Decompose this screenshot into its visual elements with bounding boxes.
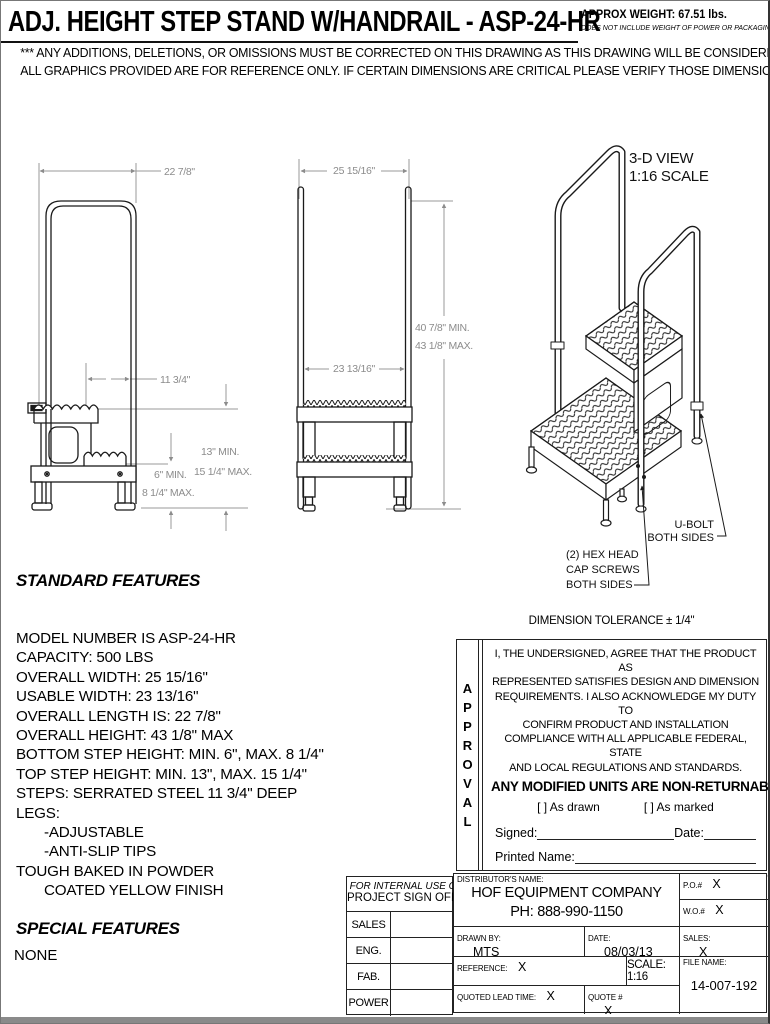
- po-label: P.O.#: [683, 881, 702, 890]
- approx-weight: APPROX WEIGHT: 67.51 lbs.: [581, 7, 748, 21]
- date-label: DATE:: [588, 934, 610, 943]
- iso-view-scale: 1:16 SCALE: [629, 168, 709, 185]
- disclaimer-line-2: ALL GRAPHICS PROVIDED ARE FOR REFERENCE …: [20, 63, 752, 78]
- approval-divider-line: [482, 640, 483, 870]
- feature-item: LEGS:: [16, 804, 361, 823]
- signed-input-line[interactable]: [537, 826, 674, 840]
- feature-item: BOTTOM STEP HEIGHT: MIN. 6", MAX. 8 1/4": [16, 745, 361, 764]
- sales-value: X: [699, 946, 765, 957]
- approval-body: I, THE UNDERSIGNED, AGREE THAT THE PRODU…: [485, 640, 766, 870]
- approval-statement: REPRESENTED SATISFIES DESIGN AND DIMENSI…: [491, 675, 760, 689]
- sign-off-field[interactable]: [391, 912, 452, 937]
- internal-use-header-line2: PROJECT SIGN OFF: [347, 892, 452, 904]
- page-bottom-edge: [1, 1017, 770, 1023]
- dim-step-depth-label: 11 3/4": [160, 374, 191, 386]
- drawn-by-cell: DRAWN BY: MTS: [454, 927, 585, 957]
- internal-use-header: FOR INTERNAL USE ONLY PROJECT SIGN OFF: [347, 877, 452, 912]
- approval-statement: REQUIREMENTS. I ALSO ACKNOWLEDGE MY DUTY…: [491, 690, 760, 718]
- hex-callout-line2: CAP SCREWS: [566, 564, 640, 576]
- drawn-by-value: MTS: [473, 946, 581, 957]
- date-value: 08/03/13: [604, 946, 676, 957]
- po-value: X: [712, 877, 720, 891]
- date-cell: DATE: 08/03/13: [585, 927, 680, 957]
- sign-off-label: FAB.: [347, 964, 391, 989]
- distributor-name: HOF EQUIPMENT COMPANY: [457, 885, 676, 901]
- side-view-structure: [28, 201, 136, 510]
- file-name-cell: FILE NAME: 14-007-192: [680, 957, 768, 1014]
- date-input-line[interactable]: [704, 826, 756, 840]
- feature-item: USABLE WIDTH: 23 13/16": [16, 687, 361, 706]
- wo-label: W.O.#: [683, 907, 705, 916]
- approval-statement: CONFIRM PRODUCT AND INSTALLATION: [491, 718, 760, 732]
- signed-label: Signed:: [495, 826, 537, 840]
- title-block: DISTRIBUTOR'S NAME: HOF EQUIPMENT COMPAN…: [453, 873, 767, 1013]
- disclaimer-line-1: *** ANY ADDITIONS, DELETIONS, OR OMISSIO…: [20, 45, 752, 60]
- iso-view-title: 3-D VIEW: [629, 150, 694, 167]
- dim-height-min-label: 40 7/8" MIN.: [415, 322, 469, 334]
- hex-callout-line3: BOTH SIDES: [566, 579, 633, 591]
- as-drawn-checkbox[interactable]: [ ] As drawn: [537, 800, 600, 814]
- wo-cell: W.O.# X: [680, 900, 768, 927]
- distributor-cell: DISTRIBUTOR'S NAME: HOF EQUIPMENT COMPAN…: [454, 874, 680, 927]
- reference-label: REFERENCE:: [457, 964, 508, 973]
- sign-off-label: ENG.: [347, 938, 391, 963]
- feature-item: -ANTI-SLIP TIPS: [16, 842, 361, 861]
- sign-off-field[interactable]: [391, 938, 452, 963]
- date-label: Date:: [674, 826, 704, 840]
- dim-bottom-step-max-label: 8 1/4" MAX.: [142, 487, 194, 499]
- approval-statement: COMPLIANCE WITH ALL APPLICABLE FEDERAL, …: [491, 732, 760, 760]
- sales-label: SALES:: [683, 934, 710, 943]
- front-view-drawing: 25 15/16" 23 13/16" 40 7/8" MIN. 43 1/8"…: [281, 141, 481, 551]
- internal-use-table: FOR INTERNAL USE ONLY PROJECT SIGN OFF S…: [346, 876, 453, 1015]
- printed-name-input-line[interactable]: [575, 850, 756, 864]
- ubolt-callout-line1: U-BOLT: [674, 519, 714, 531]
- drawn-by-label: DRAWN BY:: [457, 934, 501, 943]
- approval-box: APPROVAL I, THE UNDERSIGNED, AGREE THAT …: [456, 639, 767, 871]
- title-underline: [1, 41, 578, 43]
- reference-cell: REFERENCE: X: [454, 957, 627, 986]
- quote-number-value: X: [604, 1005, 676, 1014]
- ubolt-callout-line2: BOTH SIDES: [647, 532, 714, 544]
- weight-block: APPROX WEIGHT: 67.51 lbs. DOES NOT INCLU…: [581, 7, 767, 32]
- file-name-label: FILE NAME:: [683, 958, 765, 967]
- quote-number-cell: QUOTE # X: [585, 986, 680, 1014]
- approval-statement: AND LOCAL REGULATIONS AND STANDARDS.: [491, 761, 760, 775]
- sign-off-label: SALES: [347, 912, 391, 937]
- iso-steps: [527, 302, 683, 526]
- po-cell: P.O.# X: [680, 874, 768, 900]
- front-view-structure: [297, 187, 412, 511]
- printed-name-label: Printed Name:: [495, 850, 575, 864]
- special-features-heading: SPECIAL FEATURES: [16, 919, 180, 939]
- quoted-lead-time-value: X: [547, 989, 555, 1003]
- dim-overall-length-label: 22 7/8": [164, 166, 195, 178]
- quoted-lead-time-label: QUOTED LEAD TIME:: [457, 993, 536, 1002]
- non-returnable-warning: ANY MODIFIED UNITS ARE NON-RETURNABLE: [491, 779, 760, 794]
- dim-usable-width-label: 23 13/16": [333, 363, 375, 375]
- sign-off-row-power: POWER: [347, 990, 452, 1016]
- sales-cell: SALES: X: [680, 927, 768, 957]
- drawing-sheet: ADJ. HEIGHT STEP STAND W/HANDRAIL - ASP-…: [0, 0, 770, 1024]
- standard-features-list: MODEL NUMBER IS ASP-24-HR CAPACITY: 500 …: [16, 629, 361, 901]
- feature-item: STEPS: SERRATED STEEL 11 3/4" DEEP: [16, 784, 361, 803]
- scale-cell: SCALE: 1:16: [627, 957, 680, 986]
- sign-off-field[interactable]: [391, 990, 452, 1016]
- special-features-value: NONE: [14, 947, 57, 964]
- feature-item: TOUGH BAKED IN POWDER: [16, 862, 361, 881]
- dimension-tolerance: DIMENSION TOLERANCE ± 1/4": [456, 615, 767, 627]
- distributor-label: DISTRIBUTOR'S NAME:: [457, 875, 676, 884]
- iso-view-drawing: 3-D VIEW 1:16 SCALE U-BOLT BOTH SIDES (2…: [501, 136, 766, 601]
- file-name-value: 14-007-192: [683, 979, 765, 992]
- feature-item: MODEL NUMBER IS ASP-24-HR: [16, 629, 361, 648]
- quoted-lead-time-cell: QUOTED LEAD TIME: X: [454, 986, 585, 1014]
- dim-height-max-label: 43 1/8" MAX.: [415, 340, 473, 352]
- approval-vertical-label: APPROVAL: [461, 679, 474, 831]
- dim-bottom-step-min-label: 6" MIN.: [154, 469, 187, 481]
- dim-top-step-min-label: 13" MIN.: [201, 446, 239, 458]
- dim-top-step-max-label: 15 1/4" MAX.: [194, 466, 252, 478]
- feature-item: OVERALL LENGTH IS: 22 7/8": [16, 707, 361, 726]
- quote-number-label: QUOTE #: [588, 993, 622, 1002]
- sign-off-row-fab: FAB.: [347, 964, 452, 990]
- side-view-drawing: 22 7/8" 11 3/4" 13" MIN. 15 1/4" MAX. 6"…: [11, 141, 271, 551]
- reference-value: X: [518, 960, 526, 974]
- approval-vertical-label-column: APPROVAL: [457, 640, 479, 870]
- feature-item: CAPACITY: 500 LBS: [16, 648, 361, 667]
- feature-item: TOP STEP HEIGHT: MIN. 13", MAX. 15 1/4": [16, 765, 361, 784]
- sign-off-field[interactable]: [391, 964, 452, 989]
- feature-item: COATED YELLOW FINISH: [16, 881, 361, 900]
- approval-statement: I, THE UNDERSIGNED, AGREE THAT THE PRODU…: [491, 647, 760, 675]
- dim-overall-width-label: 25 15/16": [333, 165, 375, 177]
- sign-off-row-sales: SALES: [347, 912, 452, 938]
- page-title: ADJ. HEIGHT STEP STAND W/HANDRAIL - ASP-…: [8, 6, 600, 39]
- hex-callout-line1: (2) HEX HEAD: [566, 549, 639, 561]
- sign-off-row-eng: ENG.: [347, 938, 452, 964]
- distributor-phone: PH: 888-990-1150: [457, 904, 676, 920]
- feature-item: -ADJUSTABLE: [16, 823, 361, 842]
- weight-note: DOES NOT INCLUDE WEIGHT OF POWER OR PACK…: [581, 23, 752, 32]
- internal-use-header-line1: FOR INTERNAL USE ONLY: [350, 880, 450, 892]
- sign-off-label: POWER: [347, 990, 391, 1016]
- feature-item: OVERALL WIDTH: 25 15/16": [16, 668, 361, 687]
- standard-features-heading: STANDARD FEATURES: [16, 571, 200, 591]
- wo-value: X: [715, 903, 723, 917]
- feature-item: OVERALL HEIGHT: 43 1/8" MAX: [16, 726, 361, 745]
- as-marked-checkbox[interactable]: [ ] As marked: [644, 800, 714, 814]
